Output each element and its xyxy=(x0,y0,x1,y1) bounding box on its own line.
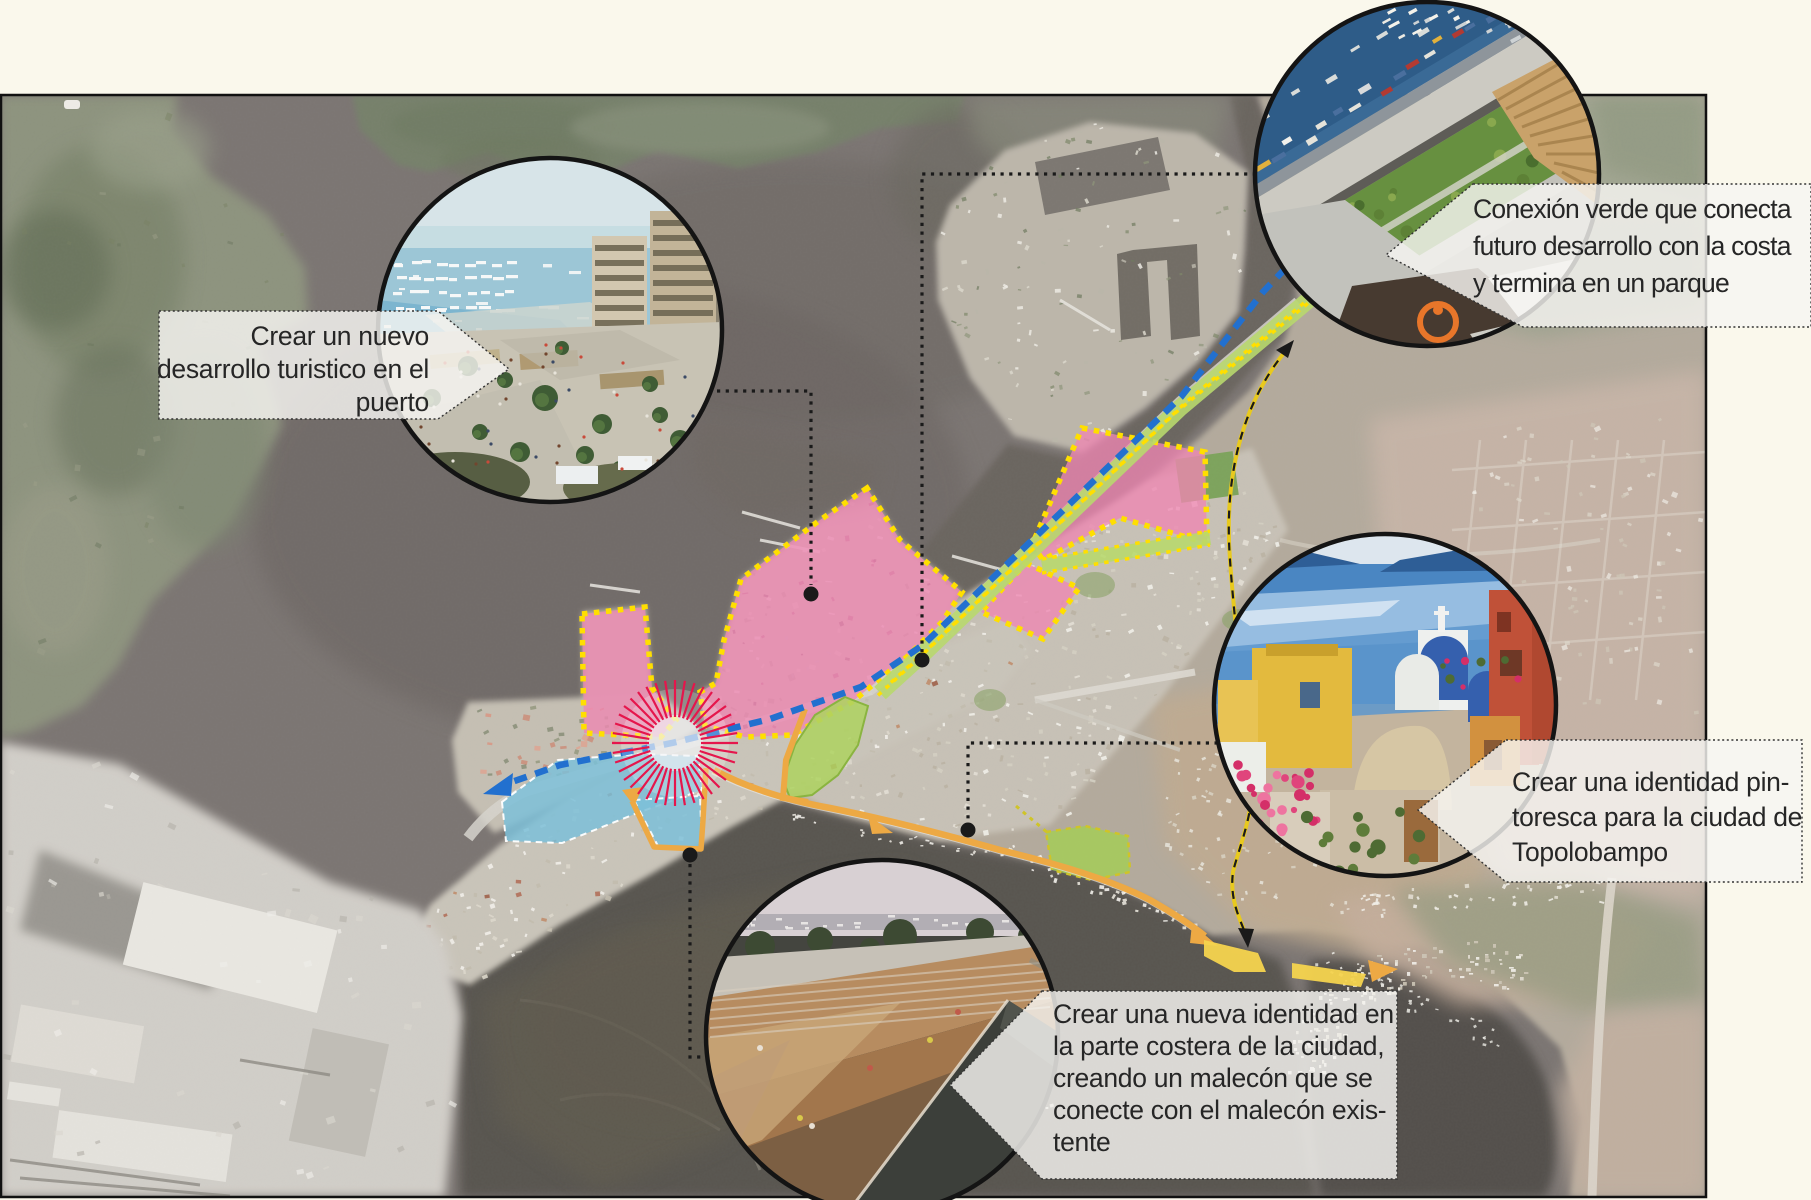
svg-text:Crear una nueva identidad en: Crear una nueva identidad en xyxy=(1053,999,1394,1029)
svg-text:desarrollo turistico en el: desarrollo turistico en el xyxy=(157,354,429,384)
svg-text:Crear una identidad pin-: Crear una identidad pin- xyxy=(1512,767,1789,797)
svg-text:conecte con el malecón exis-: conecte con el malecón exis- xyxy=(1053,1095,1386,1125)
svg-text:Topolobampo: Topolobampo xyxy=(1512,837,1668,867)
svg-text:puerto: puerto xyxy=(356,387,429,417)
svg-text:futuro desarrollo con la costa: futuro desarrollo con la costa xyxy=(1473,231,1792,261)
svg-text:tente: tente xyxy=(1053,1127,1110,1157)
svg-text:creando un malecón que se: creando un malecón que se xyxy=(1053,1063,1373,1093)
svg-text:Conexión verde que conecta: Conexión verde que conecta xyxy=(1473,194,1792,224)
svg-text:toresca para la ciudad de: toresca para la ciudad de xyxy=(1512,802,1802,832)
svg-text:Crear un nuevo: Crear un nuevo xyxy=(251,321,429,351)
svg-text:y termina en un parque: y termina en un parque xyxy=(1473,268,1729,298)
svg-text:la parte costera de la ciudad,: la parte costera de la ciudad, xyxy=(1053,1031,1384,1061)
